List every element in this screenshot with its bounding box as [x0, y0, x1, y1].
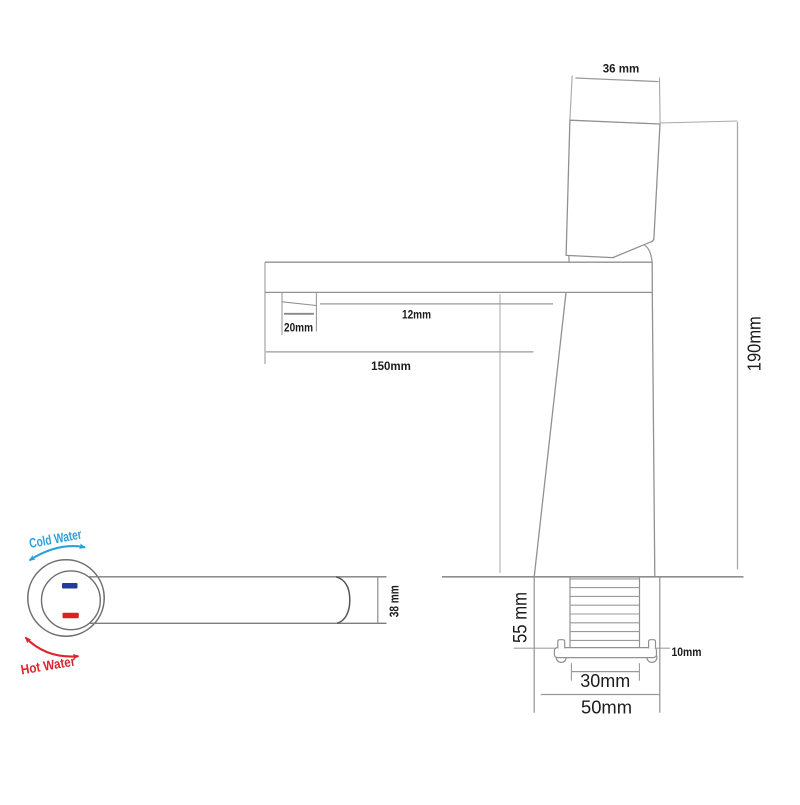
svg-text:55 mm: 55 mm — [510, 592, 531, 643]
svg-text:36 mm: 36 mm — [603, 64, 639, 76]
svg-text:50mm: 50mm — [581, 696, 632, 717]
svg-text:10mm: 10mm — [672, 647, 702, 659]
svg-text:30mm: 30mm — [580, 671, 630, 691]
svg-text:190mm: 190mm — [745, 316, 765, 371]
svg-text:38 mm: 38 mm — [387, 585, 402, 617]
svg-text:150mm: 150mm — [371, 361, 411, 373]
svg-text:12mm: 12mm — [402, 309, 431, 321]
svg-text:20mm: 20mm — [284, 322, 313, 334]
